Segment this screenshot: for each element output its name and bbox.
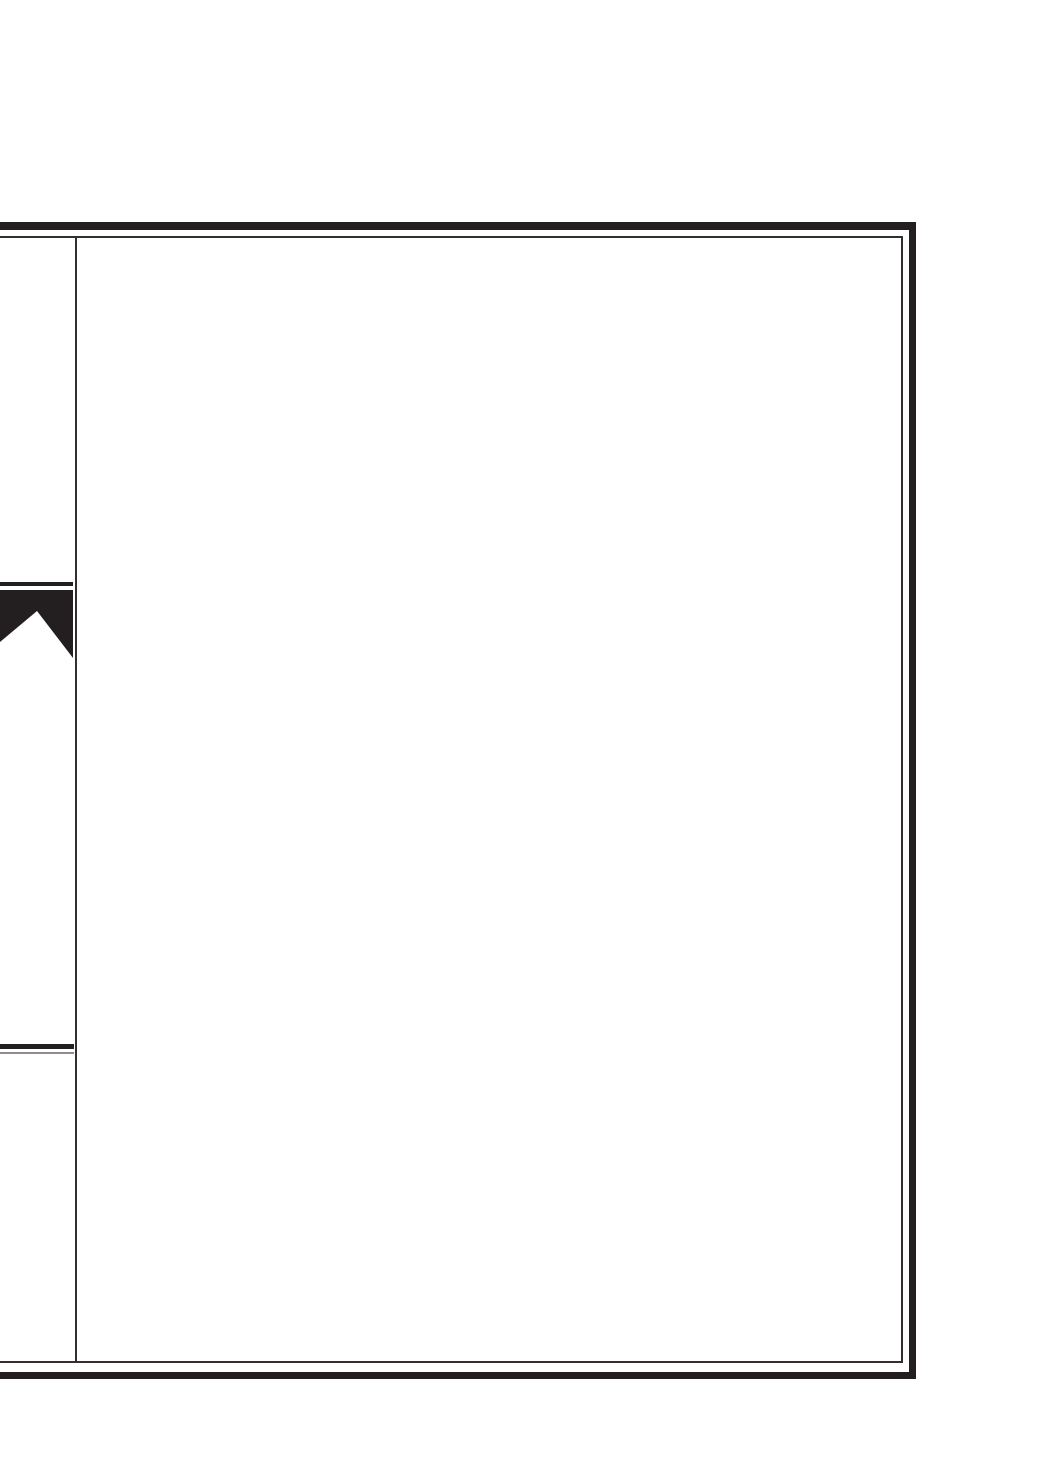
scanned-manual-page	[0, 0, 1040, 1471]
inner-frame-right-rule	[901, 236, 903, 1362]
banner-ribbon-icon	[0, 590, 73, 658]
chapter-tab-top-rule	[0, 582, 73, 586]
outer-frame-right-border	[909, 222, 916, 1379]
outer-frame-top-border	[0, 222, 916, 230]
outer-frame-bottom-border	[0, 1372, 916, 1379]
inner-frame-bottom-rule	[0, 1361, 903, 1363]
inner-frame-top-rule	[0, 236, 903, 238]
left-column-footer-rule-thick	[0, 1044, 74, 1049]
left-column-divider	[75, 237, 77, 1362]
left-column-footer-rule-thin	[0, 1052, 74, 1054]
banner-ribbon-shape	[0, 590, 73, 658]
